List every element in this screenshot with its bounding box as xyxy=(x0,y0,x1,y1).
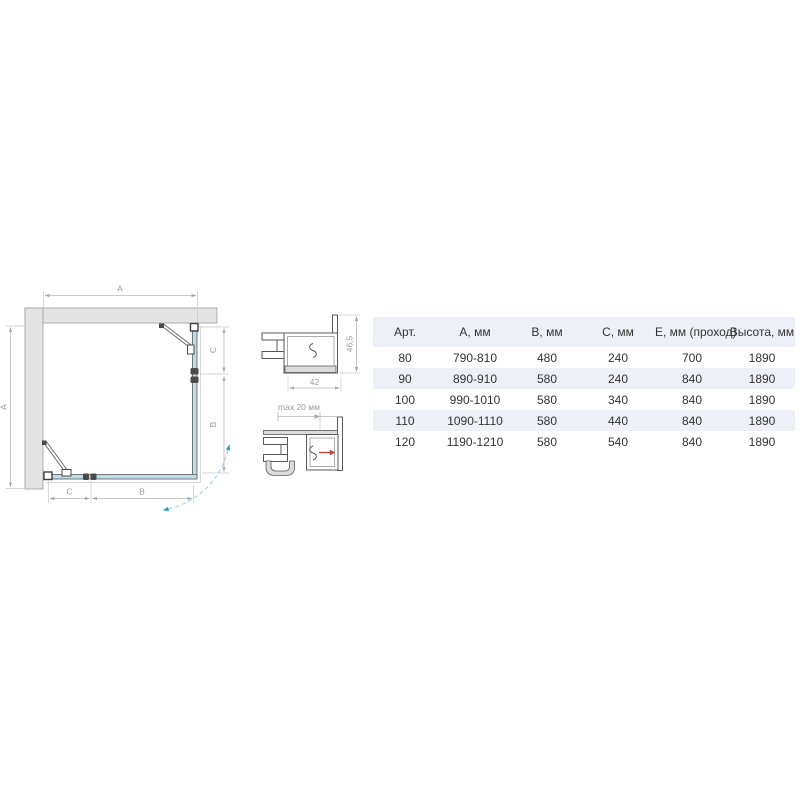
table-cell: 1890 xyxy=(729,389,795,410)
dim-label-46-5: 46,5 xyxy=(345,335,355,352)
table-cell: 580 xyxy=(513,389,581,410)
table-cell: 1890 xyxy=(729,410,795,431)
table-cell: 480 xyxy=(513,347,581,368)
header-cell-b: В, мм xyxy=(513,317,581,347)
spec-table: Арт. А, мм В, мм С, мм Е, мм (проход) Вы… xyxy=(373,317,795,452)
header-cell-e: Е, мм (проход) xyxy=(655,317,729,347)
dim-label-b-bottom: B xyxy=(139,487,145,497)
table-cell: 840 xyxy=(655,368,729,389)
table-cell: 1190-1210 xyxy=(437,431,513,452)
dimension-a-left: A xyxy=(0,326,24,489)
dim-label-a-left: A xyxy=(0,404,9,410)
profile-section-top: 42 46,5 xyxy=(262,315,360,391)
table-cell: 580 xyxy=(513,368,581,389)
frame-outer-line xyxy=(46,326,201,483)
header-cell-c: С, мм xyxy=(581,317,655,347)
table-cell: 1890 xyxy=(729,347,795,368)
profile-rounded-lip xyxy=(266,461,295,476)
table-cell: 440 xyxy=(581,410,655,431)
table-cell: 790-810 xyxy=(437,347,513,368)
table-cell: 890-910 xyxy=(437,368,513,389)
table-cell: 1890 xyxy=(729,431,795,452)
dimension-46-5: 46,5 xyxy=(339,315,360,373)
support-bar-top-right xyxy=(159,324,195,355)
plan-view: A A C B C B xyxy=(0,284,230,512)
dim-label-42: 42 xyxy=(310,377,320,387)
wall-left xyxy=(25,308,43,489)
header-row: Арт. А, мм В, мм С, мм Е, мм (проход) Вы… xyxy=(373,317,795,347)
dim-label-b-right: B xyxy=(208,421,218,427)
spec-table-body: 80 790-810 480 240 700 1890 90 890-910 5… xyxy=(373,347,795,452)
table-row: 110 1090-1110 580 440 840 1890 xyxy=(373,410,795,431)
table-cell: 1890 xyxy=(729,368,795,389)
table-cell: 240 xyxy=(581,368,655,389)
dim-label-max-20: max 20 мм xyxy=(278,402,320,412)
table-row: 80 790-810 480 240 700 1890 xyxy=(373,347,795,368)
header-cell-height: Высота, мм xyxy=(729,317,795,347)
profile-glass-clamp xyxy=(262,333,284,359)
table-row: 90 890-910 580 240 840 1890 xyxy=(373,368,795,389)
table-cell: 840 xyxy=(655,389,729,410)
header-cell-a: А, мм xyxy=(437,317,513,347)
table-cell: 540 xyxy=(581,431,655,452)
table-cell: 700 xyxy=(655,347,729,368)
dimension-c-bottom: C B xyxy=(49,481,194,503)
header-cell-art: Арт. xyxy=(373,317,437,347)
arc-arrow-icon xyxy=(163,507,169,511)
table-cell: 100 xyxy=(373,389,437,410)
support-bar-bottom-left xyxy=(42,441,71,477)
dim-label-c-bottom: C xyxy=(66,487,72,497)
wall-top xyxy=(25,308,217,323)
spec-table-header: Арт. А, мм В, мм С, мм Е, мм (проход) Вы… xyxy=(373,317,795,347)
table-cell: 90 xyxy=(373,368,437,389)
wall-bracket-top-right xyxy=(191,324,199,332)
dim-label-a-top: A xyxy=(117,284,123,294)
arc-arrow-icon xyxy=(226,444,230,450)
table-row: 100 990-1010 580 340 840 1890 xyxy=(373,389,795,410)
table-row: 120 1190-1210 580 540 840 1890 xyxy=(373,431,795,452)
profile-section-bottom: max 20 мм xyxy=(264,402,343,476)
table-cell: 840 xyxy=(655,410,729,431)
table-cell: 580 xyxy=(513,410,581,431)
table-cell: 1090-1110 xyxy=(437,410,513,431)
wall-bracket-bottom-left xyxy=(44,472,52,480)
table-cell: 110 xyxy=(373,410,437,431)
profile-glass-clamp xyxy=(264,438,288,462)
dim-label-c-right: C xyxy=(208,347,218,353)
table-cell: 120 xyxy=(373,431,437,452)
shower-enclosure-spec-sheet: A A C B C B xyxy=(0,0,800,800)
table-cell: 840 xyxy=(655,431,729,452)
table-cell: 990-1010 xyxy=(437,389,513,410)
table-cell: 580 xyxy=(513,431,581,452)
table-cell: 240 xyxy=(581,347,655,368)
profile-top-plate xyxy=(264,431,338,435)
dimension-max-20: max 20 мм xyxy=(278,402,338,430)
table-cell: 80 xyxy=(373,347,437,368)
table-cell: 340 xyxy=(581,389,655,410)
dimension-42: 42 xyxy=(288,377,341,391)
dimension-c-right: C B xyxy=(199,327,229,473)
profile-bottom-lip xyxy=(285,366,336,373)
dim-arrow-icon xyxy=(315,414,321,418)
